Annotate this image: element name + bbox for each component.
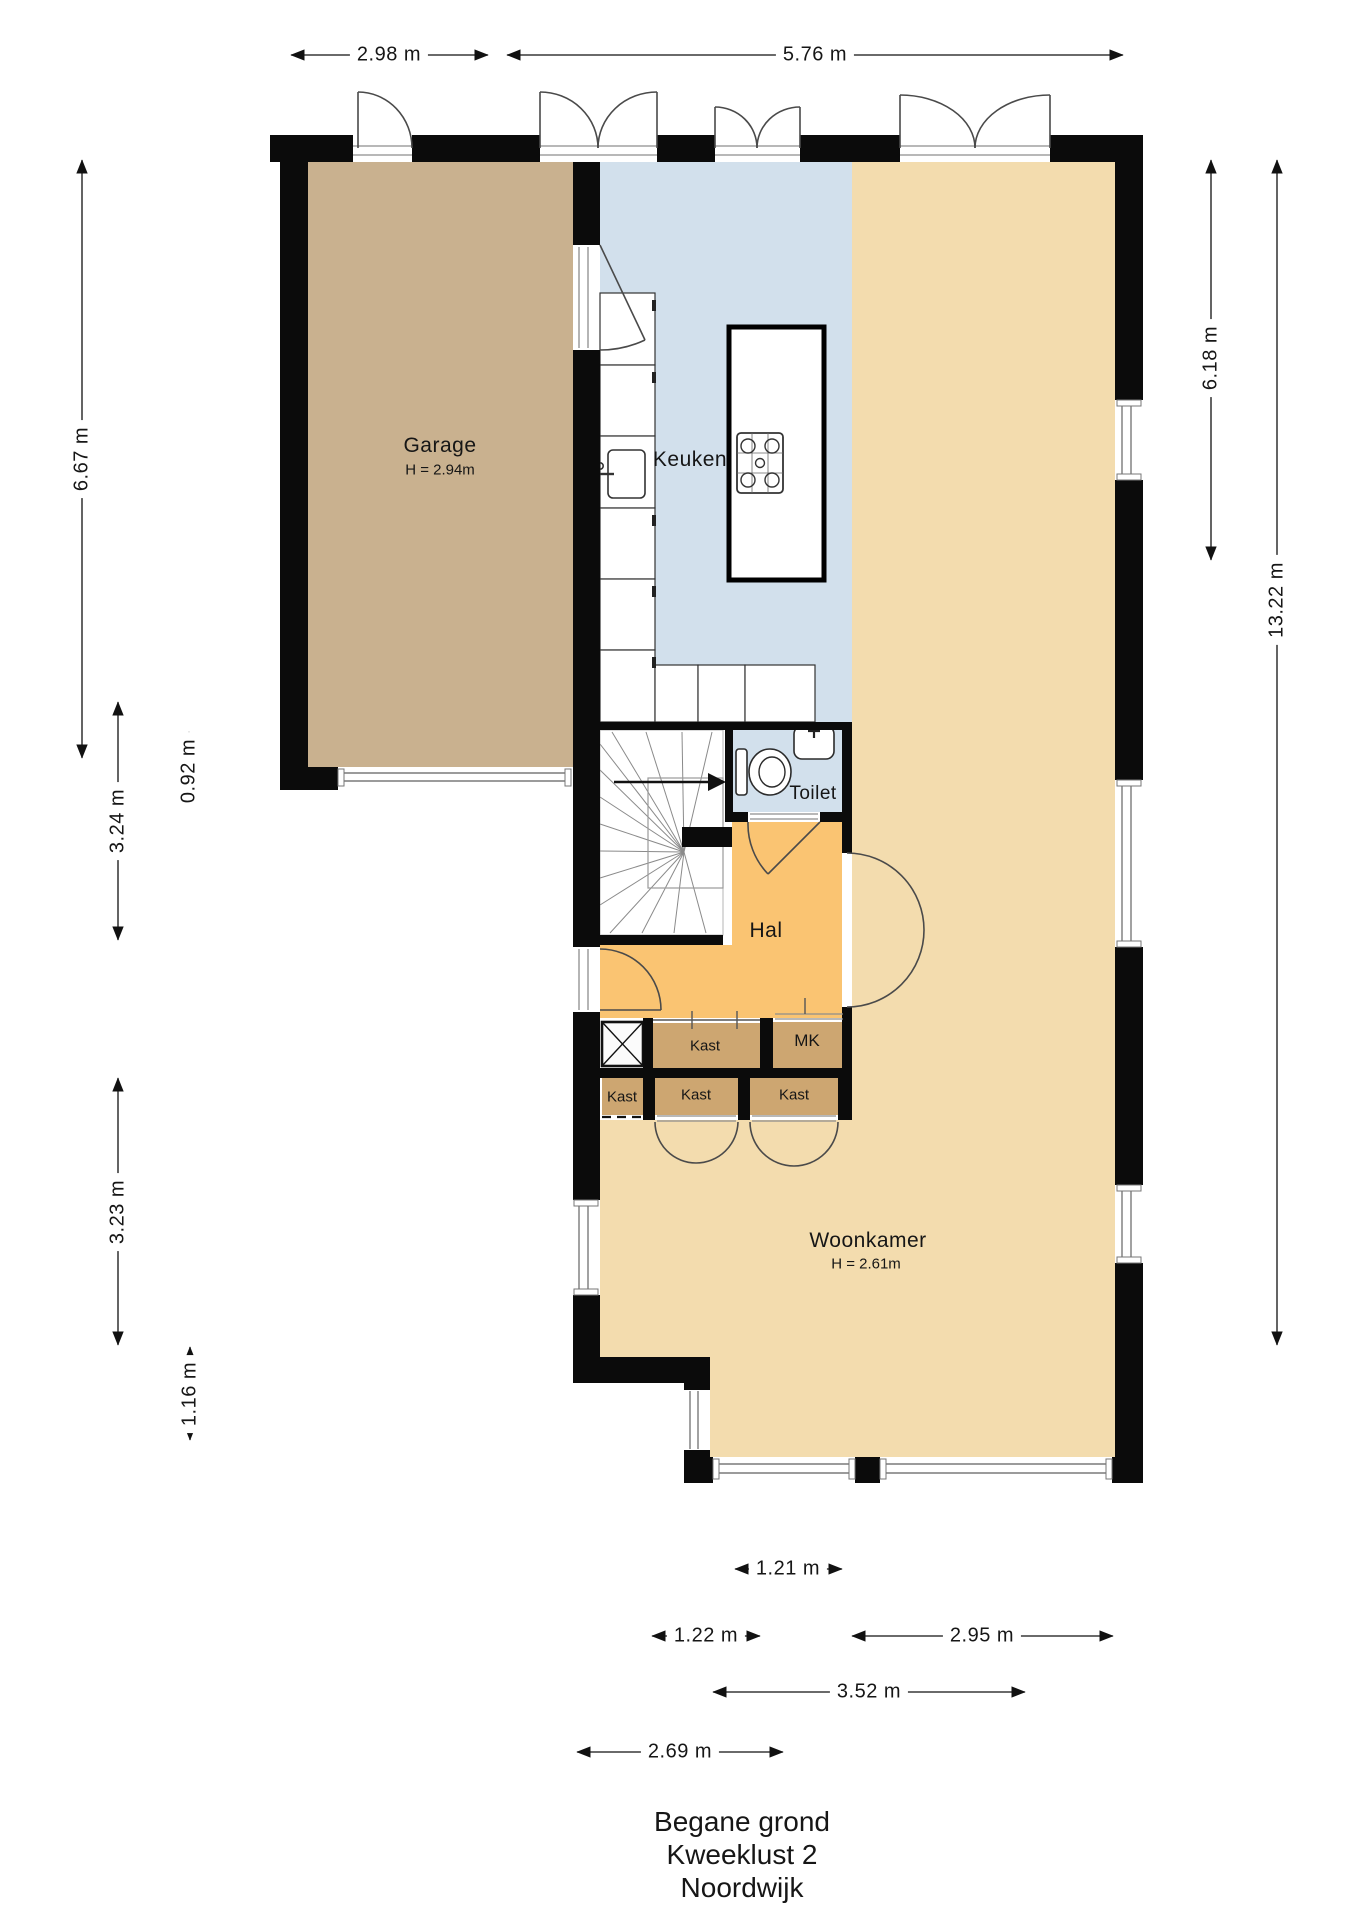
title-floor: Begane grond [654,1806,830,1838]
garage-door-bottom [338,769,571,786]
closet-top-label: Kast [690,1038,720,1055]
dim-bottom-inner: 1.21 m [749,1558,827,1581]
dim-bottom-mid: 3.52 m [830,1681,908,1704]
stove-icon [737,433,783,493]
window-right-3 [1117,1185,1141,1263]
garage-height-label: H = 2.94m [405,462,475,479]
dim-bottom-right: 2.95 m [943,1625,1021,1648]
window-bottom-1 [713,1459,855,1479]
mk-label: MK [794,1031,820,1051]
dim-bottom-left: 1.22 m [667,1625,745,1648]
hall-label: Hal [749,919,782,943]
kitchen-double-door [540,92,657,148]
dim-bottom-outer: 2.69 m [641,1741,719,1764]
closet-mid-label: Kast [681,1087,711,1104]
hall-floor-2 [600,945,742,1018]
room-floors [308,162,1115,1457]
dim-left-stairs: 3.24 m [107,782,130,860]
terrace-double-door-right [900,95,1050,148]
dim-left-lower: 3.23 m [107,1173,130,1251]
livingroom-label: Woonkamer [809,1229,926,1253]
title-city: Noordwijk [681,1872,804,1904]
dim-right-upper: 6.18 m [1200,319,1223,397]
window-right-2 [1117,780,1141,947]
shaft-box [602,1022,643,1066]
livingroom-height-label: H = 2.61m [831,1256,901,1273]
window-step [690,1391,698,1449]
kitchen-label: Keuken [653,448,727,472]
closet-left-label: Kast [607,1089,637,1106]
title-street: Kweeklust 2 [667,1839,818,1871]
closet-right-label: Kast [779,1087,809,1104]
dim-left-garage: 6.67 m [71,420,94,498]
dim-top-main: 5.76 m [776,44,854,67]
dim-left-bottom: 1.16 m [179,1355,202,1433]
floor-plan-page: 2.98 m 5.76 m 6.67 m 0.92 m 3.24 m 3.23 … [0,0,1358,1920]
toilet-sink-icon [794,726,834,759]
toilet-icon [736,749,791,795]
window-bottom-2 [880,1459,1112,1479]
terrace-double-door-left [715,107,800,148]
window-right-1 [1117,400,1141,480]
garage-label: Garage [403,434,476,458]
dim-left-step: 0.92 m [178,732,201,810]
dim-right-full: 13.22 m [1266,555,1289,645]
toilet-label: Toilet [789,783,836,805]
garage-entry-door [358,92,412,148]
dim-top-garage: 2.98 m [350,44,428,67]
window-left [574,1200,598,1295]
